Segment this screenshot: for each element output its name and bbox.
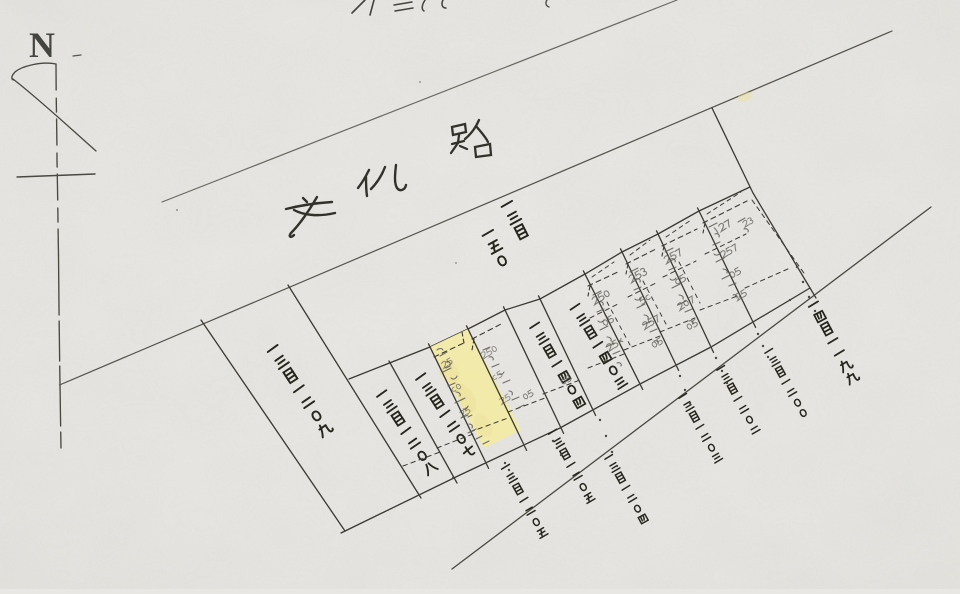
svg-text:N: N bbox=[29, 25, 55, 65]
